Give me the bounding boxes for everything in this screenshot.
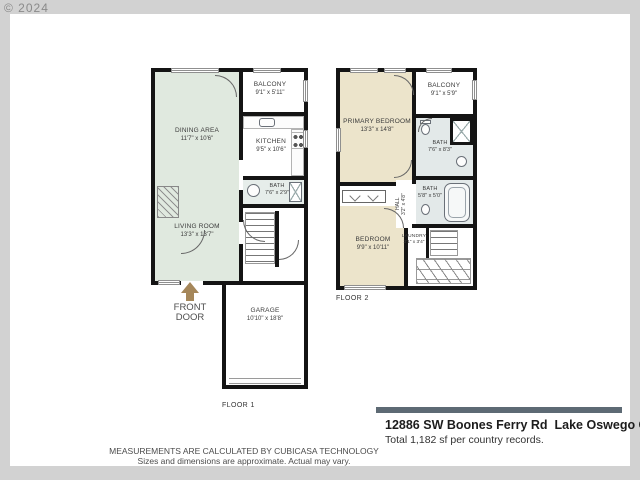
floor2-primary-bottom-wall (340, 182, 400, 186)
floor2-stair-winder (416, 258, 471, 284)
front-door-label: FRONT DOOR (168, 303, 212, 323)
front-door-arrow-stem (186, 293, 194, 301)
window (171, 68, 219, 73)
disclaimer-line2: Sizes and dimensions are approximate. Ac… (88, 456, 400, 466)
address-box-body: 12886 SW Boones Ferry Rd Lake Oswego OR … (376, 413, 622, 450)
room-label-balcony-f1: BALCONY 9'1" x 5'11" (239, 81, 301, 97)
sink-icon (456, 156, 467, 167)
floor1-living-area-fill (155, 72, 241, 281)
floor2-stairs (430, 230, 458, 256)
front-door-marker: FRONT DOOR (168, 282, 212, 323)
floor2-bath2-bottom-wall (412, 224, 473, 228)
floor2-tag: FLOOR 2 (336, 295, 369, 302)
window (303, 130, 308, 148)
room-label-balcony-f2: BALCONY 9'1" x 5'9" (416, 82, 472, 98)
floor1-tag: FLOOR 1 (222, 402, 255, 409)
closet (342, 190, 386, 203)
window (384, 68, 406, 73)
closet-rod-icon (349, 190, 360, 201)
copyright-text: © 2024 (4, 1, 49, 15)
page-canvas (10, 14, 630, 466)
window (426, 68, 452, 73)
garage-door (229, 378, 301, 384)
garage-plan: GARAGE 10'10" x 18'8" (222, 281, 308, 389)
room-label-living: LIVING ROOM 13'3" x 13'7" (157, 223, 237, 239)
room-label-primary-bedroom: PRIMARY BEDROOM 13'3" x 14'8" (340, 118, 414, 134)
closet-rod-icon (367, 190, 378, 201)
front-door-arrow-icon (181, 282, 199, 293)
room-label-bath-lower: BATH 5'8" x 5'0" (414, 186, 446, 199)
window (303, 80, 308, 102)
room-label-bedroom: BEDROOM 9'9" x 10'11" (340, 236, 406, 252)
room-label-garage: GARAGE 10'10" x 18'8" (226, 307, 304, 323)
disclaimer-line1: MEASUREMENTS ARE CALCULATED BY CUBICASA … (88, 446, 400, 456)
floor1-bath-bottom-wall (243, 204, 304, 208)
disclaimer: MEASUREMENTS ARE CALCULATED BY CUBICASA … (88, 446, 400, 466)
address-box: 12886 SW Boones Ferry Rd Lake Oswego OR … (376, 407, 622, 450)
window (472, 80, 477, 100)
room-label-dining: DINING AREA 11'7" x 10'6" (159, 127, 235, 143)
garage-door-arc (279, 240, 299, 260)
floor1-stair-hatch (157, 186, 179, 218)
room-label-kitchen: KITCHEN 9'5" x 10'6" (241, 138, 301, 154)
address-text: 12886 SW Boones Ferry Rd Lake Oswego OR (385, 418, 613, 432)
window (350, 68, 378, 73)
floor1-plan: BALCONY 9'1" x 5'11" DINING AREA 11'7" x… (151, 68, 308, 285)
window (253, 68, 281, 73)
total-sf-text: Total 1,182 sf per country records. (385, 434, 613, 446)
window (344, 285, 386, 290)
floor2-plan: HALL 3'2" x 4'8" PRIMARY BEDROOM 13'3" x… (336, 68, 477, 290)
toilet-icon (421, 204, 430, 215)
kitchen-sink-icon (259, 118, 275, 127)
room-label-bath-f1: BATH 7'6" x 2'9" (253, 183, 301, 196)
floor1-hall-opening (239, 222, 243, 244)
bathtub-icon (444, 183, 470, 222)
room-label-bath-upper: BATH 7'6" x 8'3" (418, 140, 462, 153)
